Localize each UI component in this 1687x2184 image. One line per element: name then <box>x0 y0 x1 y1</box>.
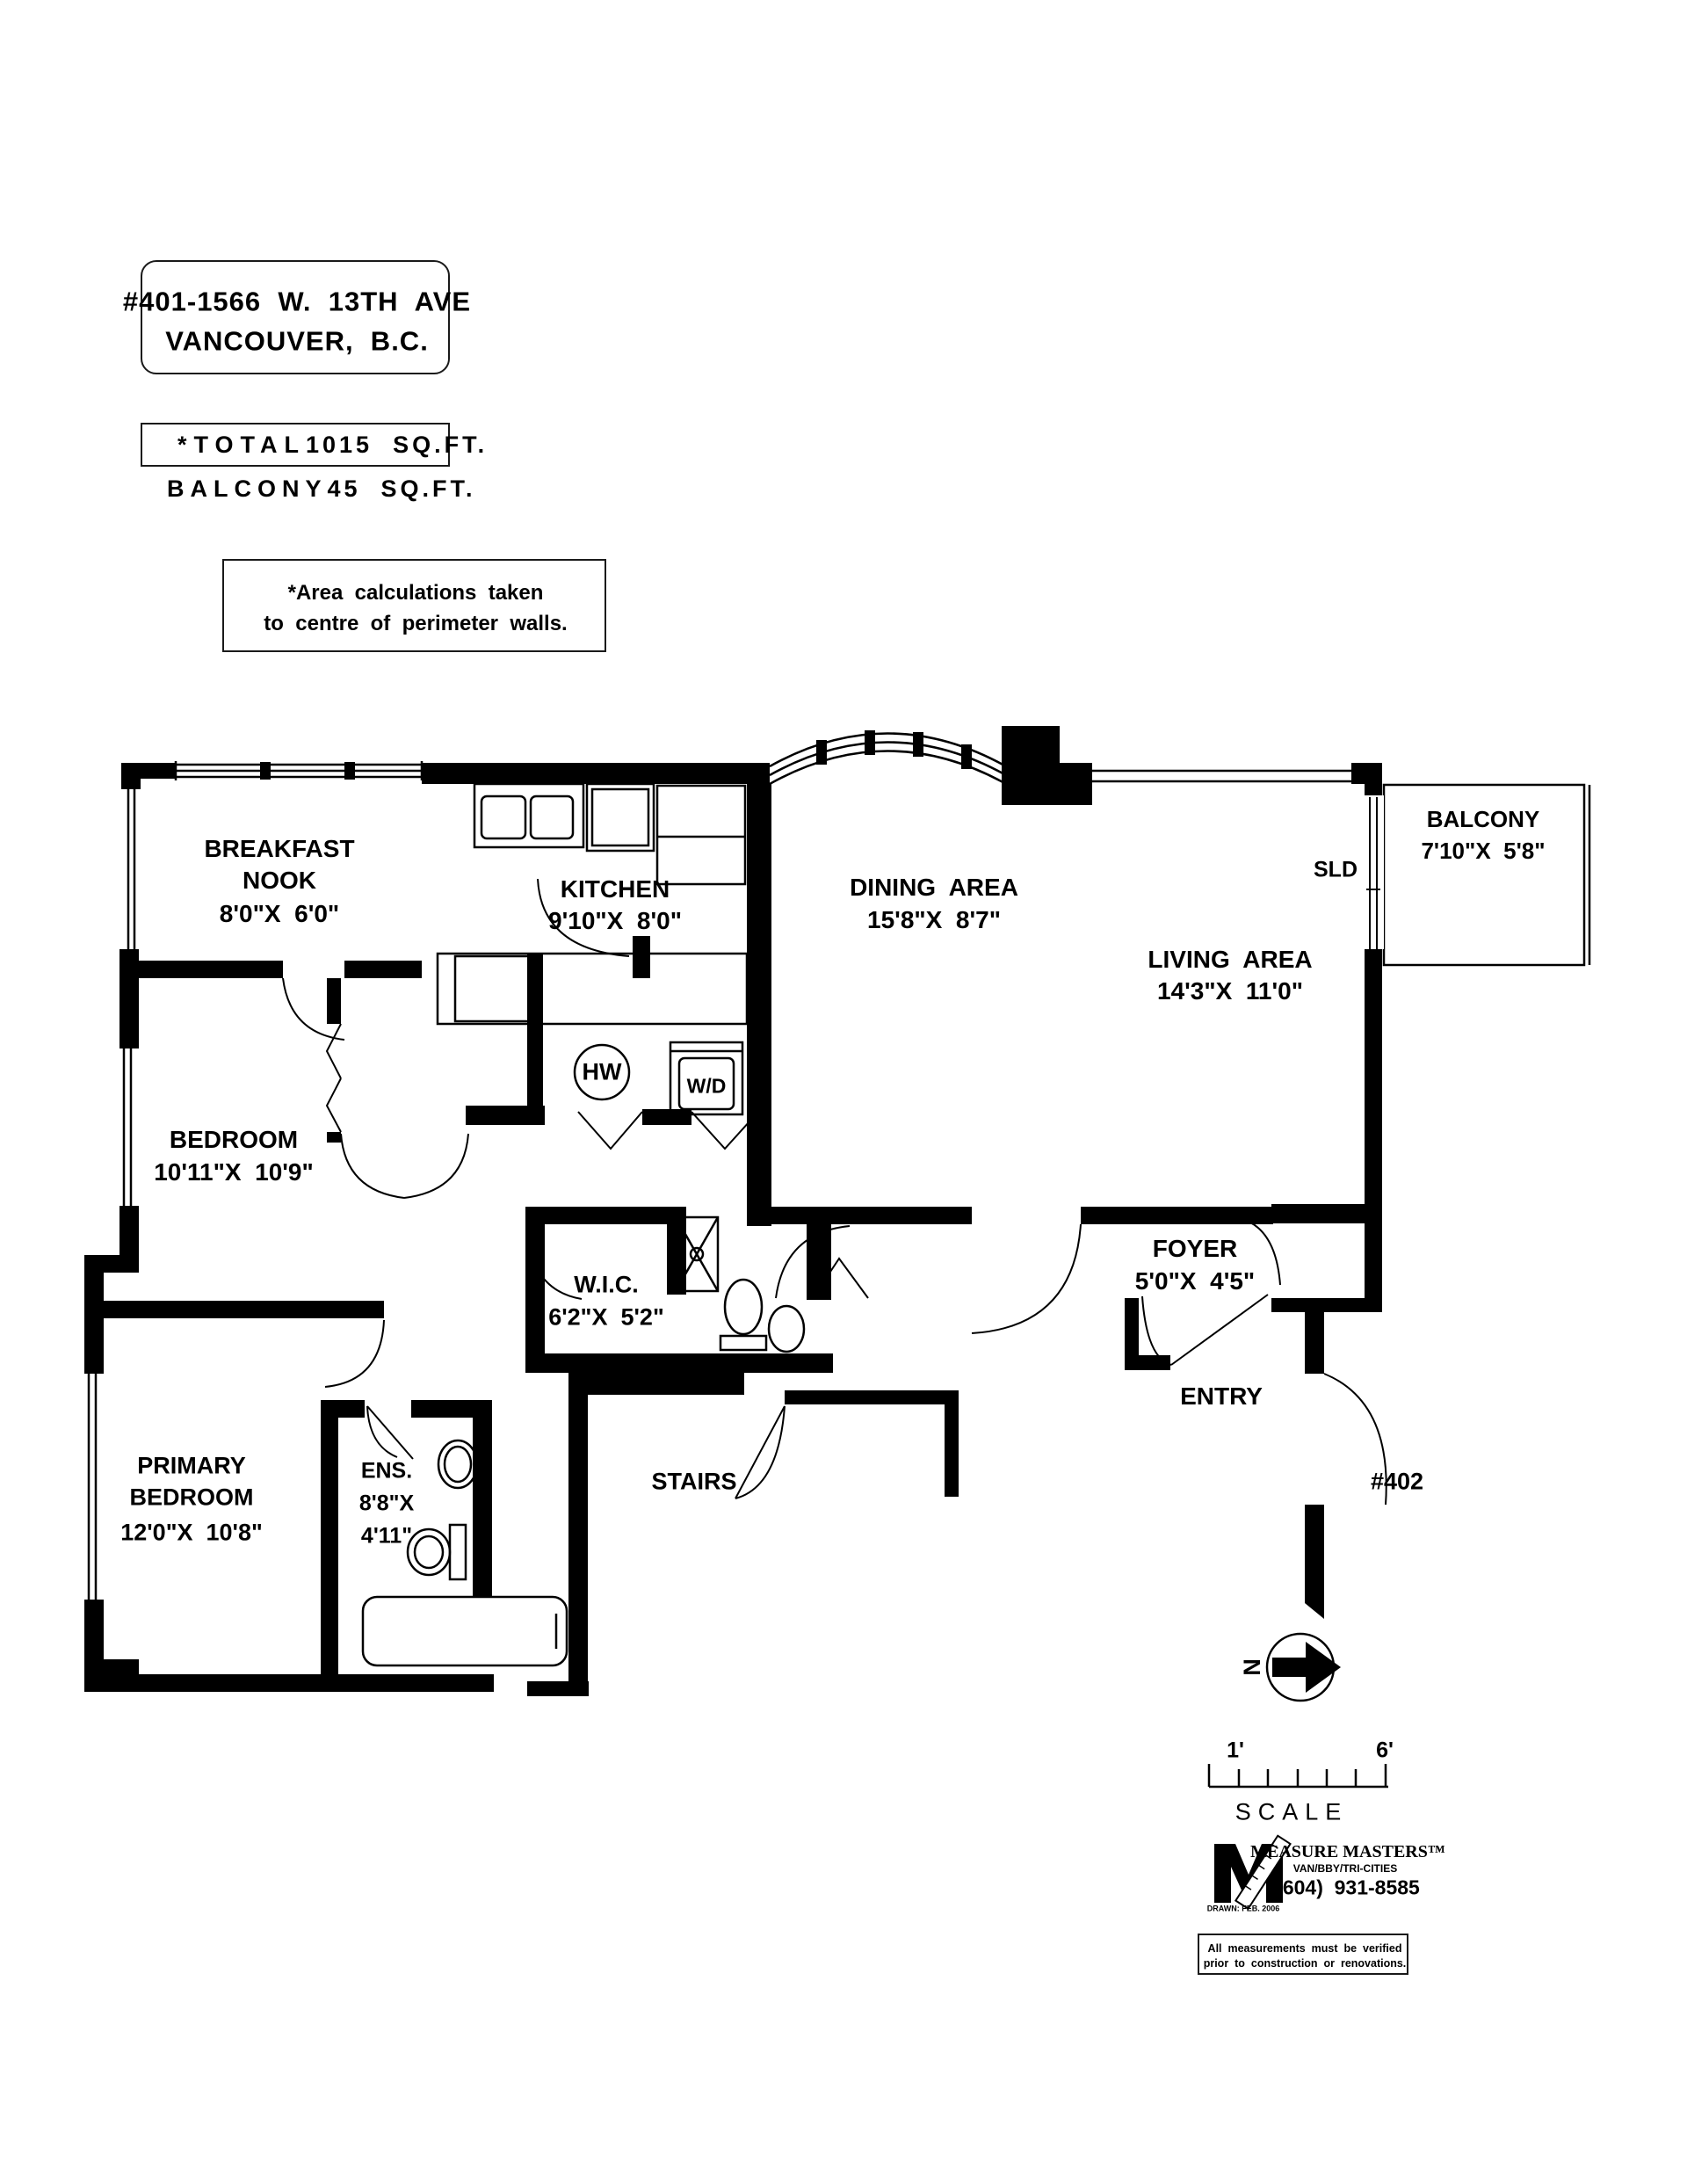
room-label-balcony: BALCONY <box>1427 808 1540 831</box>
room-dims-living: 14'3"X 11'0" <box>1157 979 1303 1004</box>
room-dims-balcony: 7'10"X 5'8" <box>1421 839 1545 862</box>
room-label-living: LIVING AREA <box>1148 947 1312 972</box>
room-dims-ensuite-1: 8'8"X <box>359 1493 414 1515</box>
scale-end-label: 6' <box>1376 1740 1394 1762</box>
company-name: MEASURE MASTERS™ <box>1250 1843 1445 1861</box>
company-regions: VAN/BBY/TRI-CITIES <box>1293 1863 1397 1874</box>
scale-start-label: 1' <box>1227 1740 1244 1762</box>
room-label-breakfast-nook-2: NOOK <box>243 868 316 893</box>
room-label-wic: W.I.C. <box>574 1273 639 1297</box>
compass-icon <box>1267 1634 1341 1701</box>
room-dims-bedroom: 10'11"X 10'9" <box>154 1160 314 1185</box>
room-label-primary-1: PRIMARY <box>137 1455 246 1478</box>
disclaimer-box: All measurements must be verified prior … <box>1198 1934 1408 1975</box>
room-dims-ensuite-2: 4'11" <box>361 1526 412 1548</box>
room-dims-wic: 6'2"X 5'2" <box>548 1306 664 1330</box>
neighbor-unit-label: #402 <box>1371 1470 1423 1494</box>
room-label-foyer: FOYER <box>1153 1237 1237 1261</box>
room-label-dining: DINING AREA <box>850 875 1018 900</box>
scale-label: SCALE <box>1235 1801 1349 1825</box>
disclaimer-line2: prior to construction or renovations. <box>1204 1958 1407 1970</box>
room-dims-primary: 12'0"X 10'8" <box>120 1521 263 1545</box>
room-dims-foyer: 5'0"X 4'5" <box>1135 1269 1255 1294</box>
room-dims-dining: 15'8"X 8'7" <box>867 908 1001 932</box>
entry-label: ENTRY <box>1180 1384 1263 1409</box>
hot-water-tank-label: HW <box>583 1061 622 1085</box>
scale-bar <box>1209 1764 1388 1787</box>
compass-north-label: N <box>1240 1658 1263 1676</box>
room-label-bedroom: BEDROOM <box>170 1128 298 1152</box>
drawn-note: DRAWN: FEB. 2006 <box>1207 1905 1280 1913</box>
room-label-breakfast-nook-1: BREAKFAST <box>204 837 354 861</box>
floorplan-page: #401-1566 W. 13TH AVE VANCOUVER, B.C. *T… <box>0 0 1687 2184</box>
stairs-label: STAIRS <box>651 1470 736 1494</box>
sliding-door-label: SLD <box>1314 860 1358 882</box>
company-phone: (604) 931-8585 <box>1276 1878 1420 1898</box>
washer-dryer-label: W/D <box>687 1077 727 1097</box>
room-label-kitchen: KITCHEN <box>561 877 670 902</box>
room-label-primary-2: BEDROOM <box>130 1486 254 1510</box>
disclaimer-line1: All measurements must be verified <box>1208 1943 1402 1955</box>
room-dims-kitchen: 9'10"X 8'0" <box>548 909 682 933</box>
room-dims-breakfast-nook: 8'0"X 6'0" <box>220 902 339 926</box>
room-label-ensuite: ENS. <box>361 1461 412 1483</box>
